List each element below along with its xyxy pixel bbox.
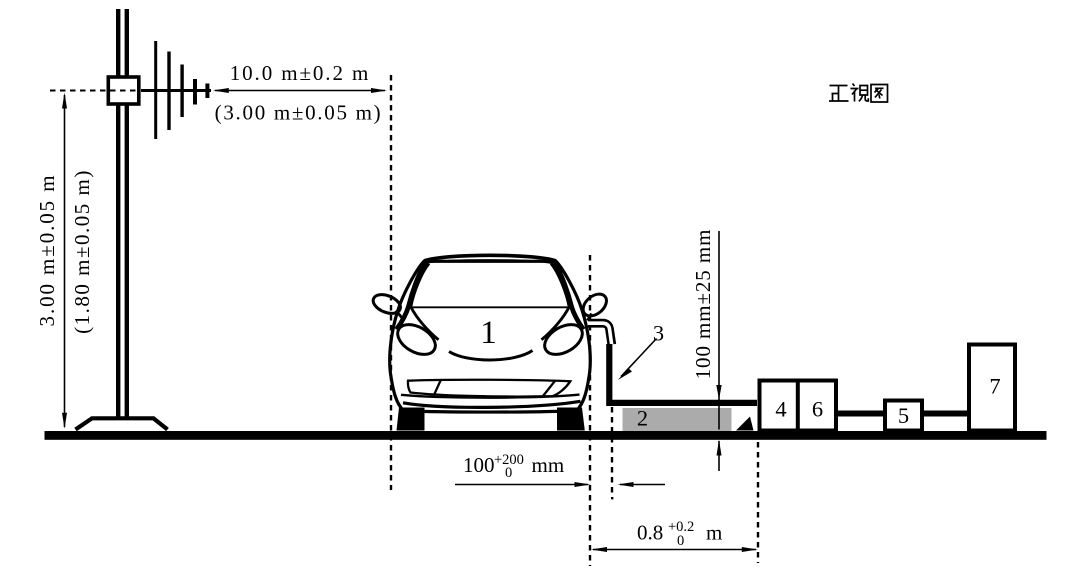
svg-text:3: 3 <box>653 321 664 346</box>
svg-text:(3.00 m±0.05 m): (3.00 m±0.05 m) <box>215 101 383 125</box>
svg-text:5: 5 <box>898 403 909 428</box>
svg-text:7: 7 <box>989 374 1000 399</box>
svg-text:0: 0 <box>677 533 684 549</box>
svg-text:mm: mm <box>532 453 565 477</box>
svg-text:6: 6 <box>812 397 823 422</box>
svg-text:100: 100 <box>463 453 495 477</box>
svg-text:3.00 m±0.05 m: 3.00 m±0.05 m <box>35 174 59 327</box>
svg-text:1: 1 <box>480 315 497 351</box>
svg-text:m: m <box>706 521 722 545</box>
svg-text:2: 2 <box>637 406 648 431</box>
svg-text:(1.80 m±0.05 m): (1.80 m±0.05 m) <box>70 169 94 334</box>
svg-text:0.8: 0.8 <box>637 521 663 545</box>
svg-text:10.0 m±0.2 m: 10.0 m±0.2 m <box>230 61 371 85</box>
svg-text:0: 0 <box>505 465 512 481</box>
svg-text:4: 4 <box>775 397 786 422</box>
svg-text:100 mm±25 mm: 100 mm±25 mm <box>691 229 715 380</box>
